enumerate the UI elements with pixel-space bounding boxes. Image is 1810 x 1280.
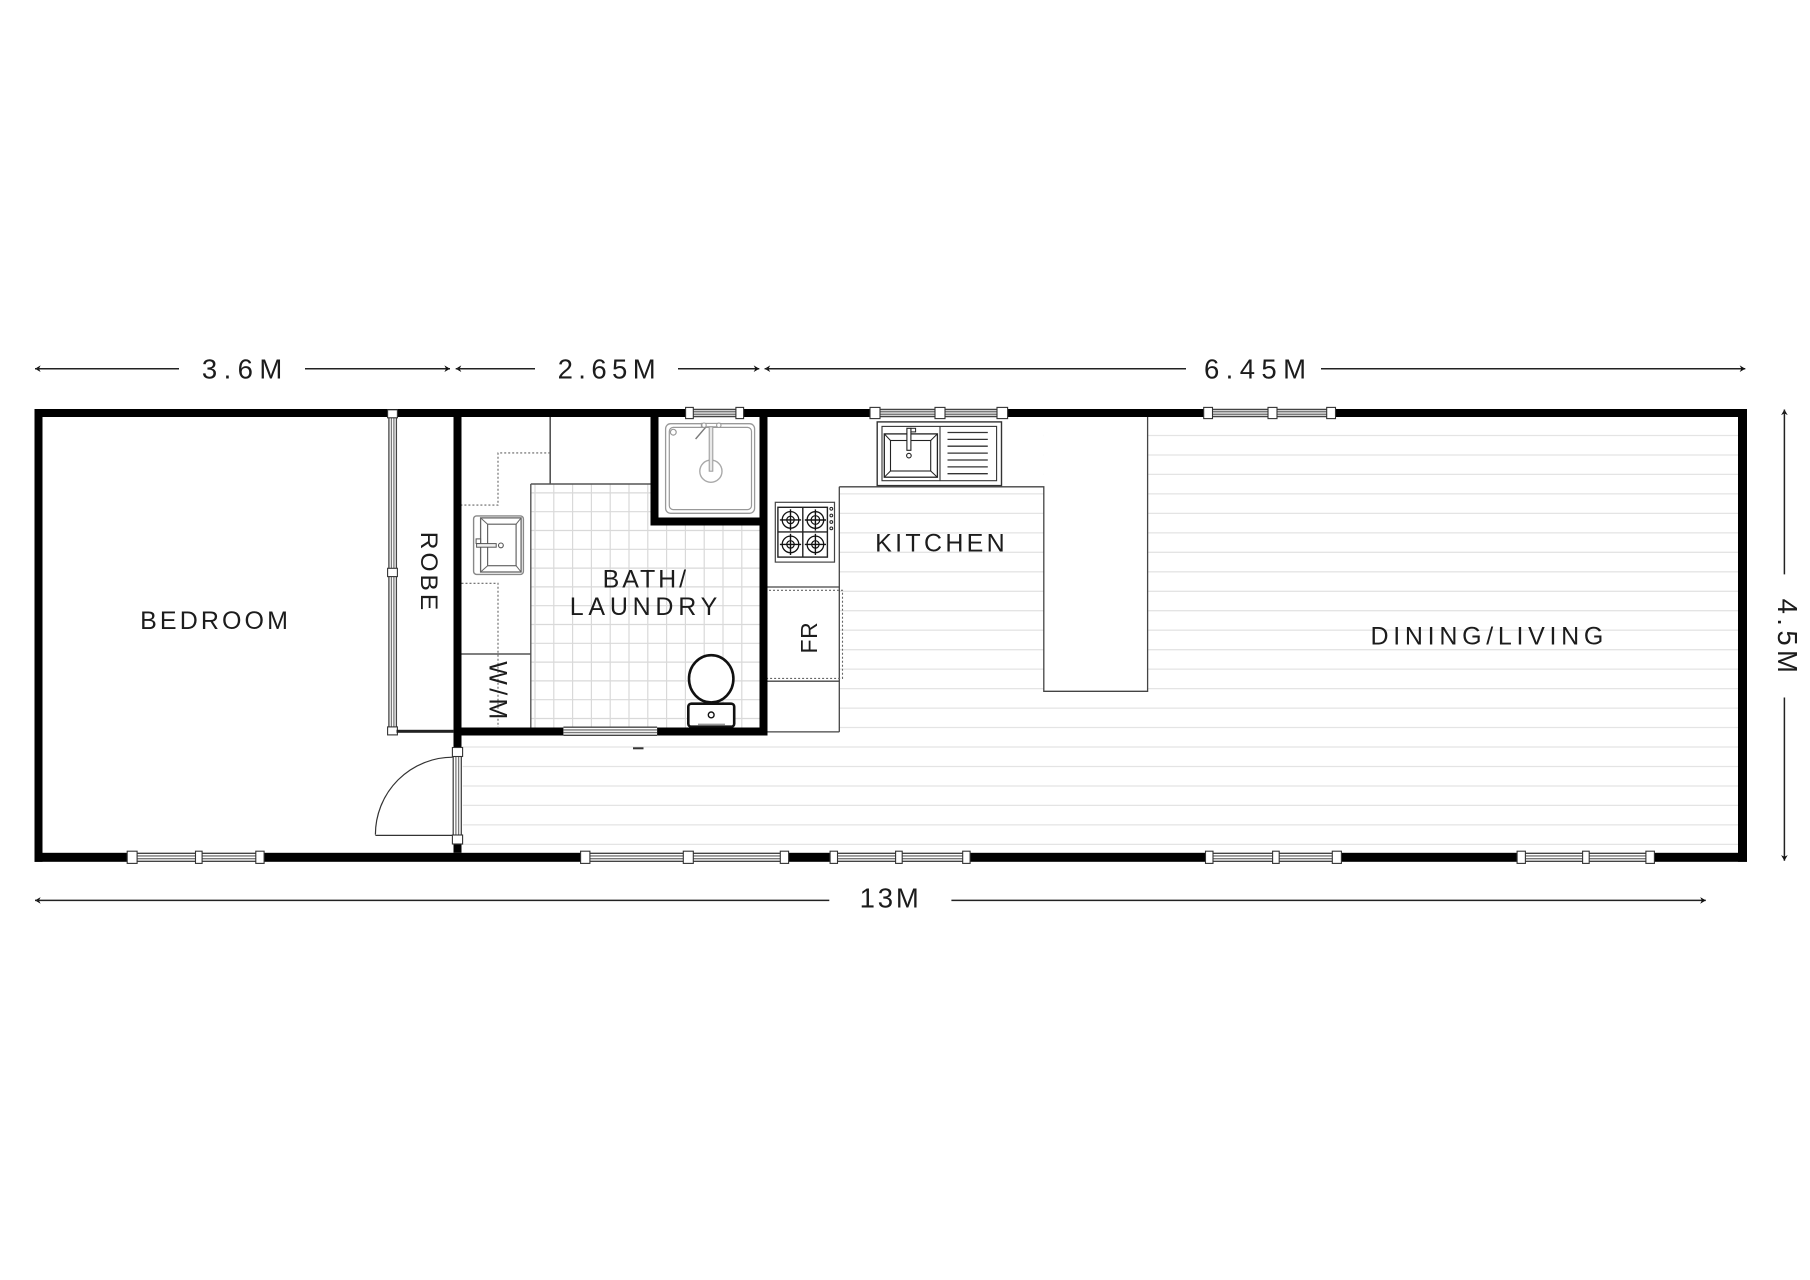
svg-text:KITCHEN: KITCHEN (875, 529, 1008, 557)
svg-text:DINING/LIVING: DINING/LIVING (1371, 623, 1609, 651)
svg-text:13M: 13M (860, 883, 922, 914)
svg-text:ROBE: ROBE (415, 532, 442, 613)
svg-text:2.65M: 2.65M (558, 353, 661, 384)
svg-text:4.5M: 4.5M (1772, 599, 1803, 678)
svg-text:FR: FR (796, 622, 822, 654)
svg-text:3.6M: 3.6M (202, 353, 289, 384)
svg-text:W/M: W/M (484, 661, 512, 723)
svg-text:BEDROOM: BEDROOM (140, 607, 291, 635)
svg-text:6.45M: 6.45M (1204, 353, 1312, 384)
svg-text:BATH/: BATH/ (603, 565, 689, 593)
svg-text:LAUNDRY: LAUNDRY (570, 593, 722, 621)
